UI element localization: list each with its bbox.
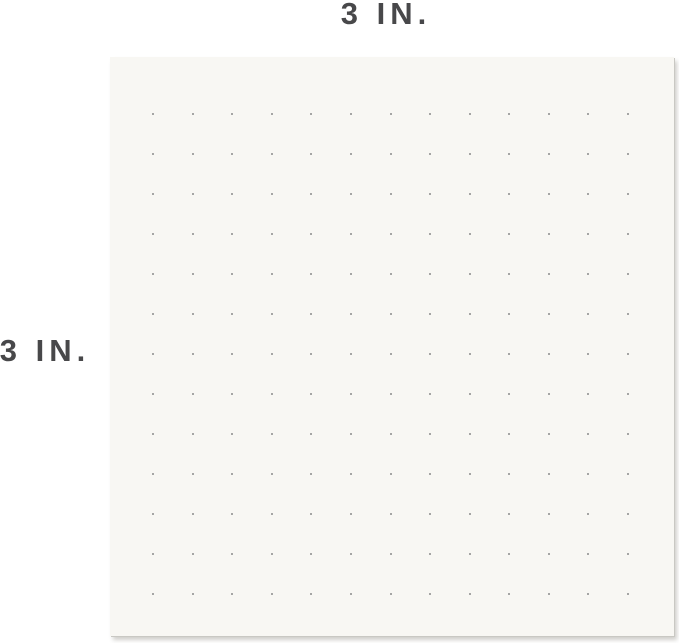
grid-dot [390,353,392,355]
top-dimension-label: 3 IN. [316,0,456,31]
grid-dot [429,273,431,275]
grid-dot [310,513,312,515]
grid-dot [271,193,273,195]
grid-dot [627,233,629,235]
grid-dot [350,433,352,435]
grid-dot [548,113,550,115]
grid-dot [192,553,194,555]
grid-dot [152,393,154,395]
grid-dot [271,473,273,475]
top-dimension-line-right-segment [462,11,673,13]
grid-dot [152,553,154,555]
grid-dot [548,513,550,515]
grid-dot [508,513,510,515]
grid-dot [192,313,194,315]
left-dimension-end-tick-bottom [65,633,89,635]
top-dimension-end-tick-left [108,11,110,36]
grid-dot [350,393,352,395]
grid-dot [390,473,392,475]
grid-dot [152,353,154,355]
grid-dot [469,273,471,275]
grid-dot [152,593,154,595]
grid-dot [627,273,629,275]
grid-dot [192,113,194,115]
grid-dot [231,473,233,475]
grid-dot [310,593,312,595]
grid-dot [350,193,352,195]
grid-dot [587,353,589,355]
grid-dot [350,113,352,115]
grid-dot [508,473,510,475]
grid-dot [350,153,352,155]
product-dimension-image: 3 IN. 3 IN. [0,0,679,643]
grid-dot [469,593,471,595]
grid-dot [429,353,431,355]
grid-dot [508,553,510,555]
grid-dot [152,113,154,115]
grid-dot [231,513,233,515]
grid-dot [469,353,471,355]
grid-dot [271,113,273,115]
grid-dot [429,393,431,395]
grid-dot [587,593,589,595]
grid-dot [231,233,233,235]
grid-dot [429,233,431,235]
grid-dot [508,393,510,395]
grid-dot [271,393,273,395]
grid-dot [152,273,154,275]
grid-dot [548,313,550,315]
grid-dot [390,233,392,235]
grid-dot [627,153,629,155]
grid-dot [587,273,589,275]
grid-dot [152,313,154,315]
grid-dot [627,313,629,315]
grid-dot [548,353,550,355]
grid-dot [271,553,273,555]
grid-dot [310,273,312,275]
grid-dot [469,233,471,235]
grid-dot [310,473,312,475]
dot-grid-paper [110,57,674,636]
grid-dot [508,193,510,195]
grid-dot [469,473,471,475]
grid-dot [587,153,589,155]
grid-dot [152,233,154,235]
grid-dot [271,313,273,315]
grid-dot [508,233,510,235]
left-dimension-line-bottom-segment [65,390,67,635]
grid-dot [271,513,273,515]
grid-dot [192,513,194,515]
grid-dot [627,593,629,595]
grid-dot [587,513,589,515]
grid-dot [192,593,194,595]
grid-dot [271,353,273,355]
grid-dot [350,233,352,235]
grid-dot [587,473,589,475]
left-dimension-end-tick-top [65,57,89,59]
grid-dot [548,473,550,475]
grid-dot [271,233,273,235]
grid-dot [192,153,194,155]
grid-dot [310,233,312,235]
grid-dot [390,193,392,195]
grid-dot [429,473,431,475]
grid-dot [152,433,154,435]
grid-dot [231,353,233,355]
grid-dot [627,353,629,355]
grid-dot [587,193,589,195]
grid-dot [231,393,233,395]
grid-dot [350,593,352,595]
grid-dot [350,513,352,515]
grid-dot [350,353,352,355]
grid-dot [627,513,629,515]
grid-dot [192,393,194,395]
grid-dot [390,593,392,595]
grid-dot [310,353,312,355]
grid-dot [310,393,312,395]
grid-dot [271,433,273,435]
grid-dot [469,393,471,395]
grid-dot [587,113,589,115]
grid-dot [192,473,194,475]
top-dimension-line-left-segment [108,11,327,13]
dot-grid [153,114,628,594]
grid-dot [192,273,194,275]
grid-dot [429,193,431,195]
grid-dot [508,353,510,355]
grid-dot [548,433,550,435]
grid-dot [508,113,510,115]
grid-dot [390,513,392,515]
grid-dot [469,313,471,315]
grid-dot [231,113,233,115]
grid-dot [231,153,233,155]
grid-dot [152,193,154,195]
grid-dot [508,433,510,435]
grid-dot [350,473,352,475]
grid-dot [548,593,550,595]
grid-dot [390,113,392,115]
grid-dot [271,153,273,155]
grid-dot [390,553,392,555]
grid-dot [390,273,392,275]
grid-dot [231,273,233,275]
grid-dot [231,193,233,195]
grid-dot [350,273,352,275]
grid-dot [350,313,352,315]
grid-dot [627,193,629,195]
grid-dot [587,433,589,435]
grid-dot [469,153,471,155]
grid-dot [152,473,154,475]
grid-dot [587,313,589,315]
grid-dot [508,593,510,595]
grid-dot [192,193,194,195]
grid-dot [310,153,312,155]
grid-dot [548,273,550,275]
grid-dot [627,113,629,115]
grid-dot [231,313,233,315]
left-dimension-line-top-segment [65,57,67,305]
grid-dot [310,113,312,115]
grid-dot [429,313,431,315]
grid-dot [390,393,392,395]
grid-dot [310,433,312,435]
grid-dot [627,553,629,555]
grid-dot [508,273,510,275]
grid-dot [627,393,629,395]
grid-dot [192,353,194,355]
grid-dot [429,153,431,155]
grid-dot [429,113,431,115]
grid-dot [231,593,233,595]
grid-dot [271,273,273,275]
grid-dot [587,553,589,555]
grid-dot [469,433,471,435]
grid-dot [587,393,589,395]
grid-dot [192,433,194,435]
grid-dot [429,513,431,515]
grid-dot [548,233,550,235]
grid-dot [429,433,431,435]
grid-dot [152,153,154,155]
grid-dot [508,313,510,315]
grid-dot [390,153,392,155]
grid-dot [231,553,233,555]
grid-dot [469,113,471,115]
grid-dot [469,193,471,195]
grid-dot [429,553,431,555]
grid-dot [508,153,510,155]
grid-dot [548,553,550,555]
grid-dot [627,473,629,475]
grid-dot [152,513,154,515]
grid-dot [310,553,312,555]
grid-dot [231,433,233,435]
grid-dot [192,233,194,235]
grid-dot [469,513,471,515]
left-dimension-label: 3 IN. [0,334,105,367]
grid-dot [350,553,352,555]
grid-dot [627,433,629,435]
grid-dot [310,313,312,315]
grid-dot [390,433,392,435]
grid-dot [548,393,550,395]
grid-dot [548,193,550,195]
grid-dot [310,193,312,195]
grid-dot [548,153,550,155]
top-dimension-end-tick-right [671,11,673,36]
grid-dot [429,593,431,595]
grid-dot [271,593,273,595]
grid-dot [587,233,589,235]
grid-dot [469,553,471,555]
grid-dot [390,313,392,315]
